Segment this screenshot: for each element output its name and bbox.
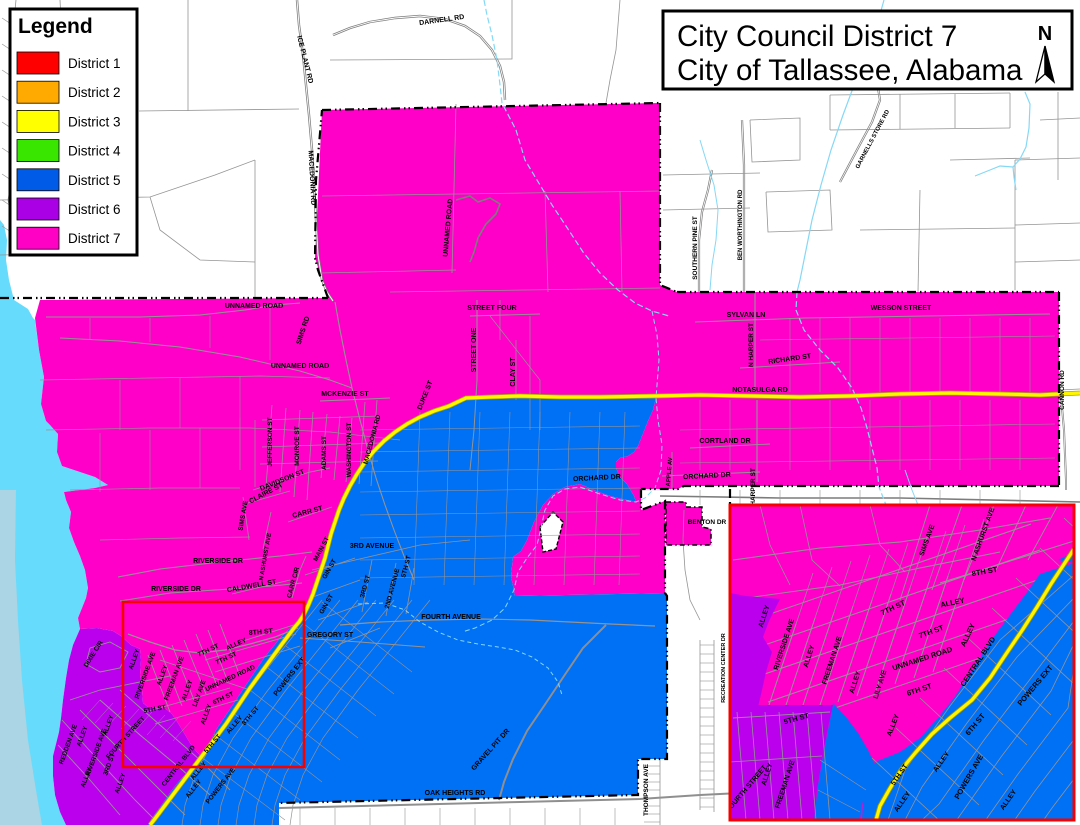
svg-text:N HARPER ST: N HARPER ST — [748, 323, 755, 367]
svg-text:District 7: District 7 — [68, 231, 121, 246]
svg-text:City of Tallassee, Alabama: City of Tallassee, Alabama — [677, 54, 1023, 87]
svg-text:Legend: Legend — [18, 15, 93, 38]
svg-text:SYLVAN LN: SYLVAN LN — [727, 312, 766, 319]
svg-text:District 5: District 5 — [68, 173, 121, 188]
svg-text:CANNON RD: CANNON RD — [1059, 370, 1066, 410]
svg-text:THOMPSON AVE: THOMPSON AVE — [643, 763, 650, 816]
svg-text:WESSON STREET: WESSON STREET — [871, 305, 932, 312]
svg-text:OAK HEIGHTS RD: OAK HEIGHTS RD — [425, 790, 486, 797]
svg-text:RECREATION CENTER DR: RECREATION CENTER DR — [721, 633, 727, 703]
svg-text:JEFFERSON ST: JEFFERSON ST — [267, 417, 274, 466]
svg-text:RIVERSIDE DR: RIVERSIDE DR — [193, 558, 243, 565]
svg-text:NOTASULGA RD: NOTASULGA RD — [732, 387, 788, 394]
svg-text:City Council District 7: City Council District 7 — [677, 20, 957, 53]
svg-text:WASHINGTON ST: WASHINGTON ST — [346, 423, 353, 478]
svg-text:District 6: District 6 — [68, 202, 121, 217]
svg-text:MCKENZIE ST: MCKENZIE ST — [321, 391, 369, 398]
svg-text:GREGORY ST: GREGORY ST — [307, 632, 354, 639]
svg-text:District 4: District 4 — [68, 144, 121, 159]
svg-text:STREET ONE: STREET ONE — [471, 327, 478, 372]
svg-text:BENTON DR: BENTON DR — [688, 519, 727, 526]
svg-text:FOURTH AVENUE: FOURTH AVENUE — [421, 614, 481, 621]
svg-text:BEN WORTHINGTON RD: BEN WORTHINGTON RD — [738, 189, 744, 260]
svg-text:CLAY ST: CLAY ST — [510, 357, 517, 387]
svg-text:3RD AVENUE: 3RD AVENUE — [350, 543, 395, 550]
svg-text:District 3: District 3 — [68, 114, 121, 129]
svg-text:CORTLAND DR: CORTLAND DR — [699, 438, 750, 445]
svg-text:UNNAMED ROAD: UNNAMED ROAD — [271, 363, 329, 370]
svg-text:STREET FOUR: STREET FOUR — [467, 305, 516, 312]
svg-text:District 1: District 1 — [68, 56, 121, 71]
svg-text:SOUTHERN PINE ST: SOUTHERN PINE ST — [692, 216, 699, 280]
svg-text:ADAMS ST: ADAMS ST — [321, 436, 328, 470]
svg-text:UNNAMED ROAD: UNNAMED ROAD — [225, 303, 283, 310]
svg-text:N: N — [1038, 23, 1052, 45]
svg-text:MONROE ST: MONROE ST — [294, 426, 301, 465]
svg-text:RIVERSIDE DR: RIVERSIDE DR — [151, 586, 201, 593]
svg-text:District 2: District 2 — [68, 85, 121, 100]
